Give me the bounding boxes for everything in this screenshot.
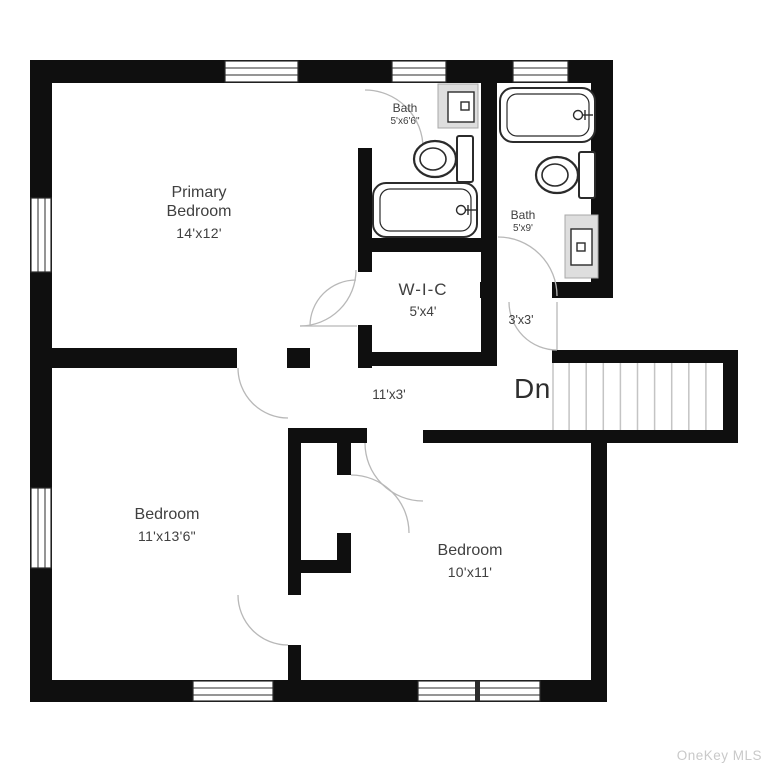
- wall-bedroom-divider-lower: [288, 645, 301, 680]
- door-arc-bedroom-right-entry: [365, 443, 423, 501]
- room-name: Bath: [511, 208, 536, 222]
- window-bedroom-right-bottom: [418, 681, 540, 701]
- room-dims: 11'x3': [372, 387, 405, 402]
- room-dims: 10'x11': [438, 564, 503, 581]
- bathtub-icon: [500, 88, 595, 142]
- room-dims: 5'x6'6": [390, 116, 419, 128]
- window-bedroom-left-bottom: [193, 681, 273, 701]
- door-arc-wic: [310, 280, 356, 326]
- room-name: Bedroom: [438, 541, 503, 560]
- room-label-wic: W-I-C 5'x4': [398, 280, 447, 321]
- room-name: W-I-C: [398, 280, 447, 300]
- stairs: [552, 363, 723, 430]
- room-dims: 3'x3': [509, 313, 534, 327]
- room-dims: 14'x12': [167, 225, 232, 242]
- room-label-bedroom-right: Bedroom 10'x11': [438, 541, 503, 581]
- room-label-primary-bedroom: Primary Bedroom 14'x12': [167, 183, 232, 242]
- room-label-hallway: 11'x3': [372, 387, 405, 403]
- tub-faucet-icon: [457, 206, 466, 215]
- window-primary-left: [31, 198, 51, 272]
- tub-faucet-icon: [574, 111, 583, 120]
- wall-bedroom-right-east: [591, 430, 607, 682]
- wall-primary-right: [358, 148, 372, 272]
- wall-stairs-bottom: [423, 430, 738, 443]
- room-dims: 5'x4': [398, 304, 447, 320]
- floor-plan: Primary Bedroom 14'x12' Bath 5'x6'6" Bat…: [0, 0, 767, 768]
- room-label-bath-ensuite: Bath 5'x6'6": [390, 101, 419, 128]
- door-arcs: [238, 90, 557, 645]
- door-arc-bedroom-left-entry: [238, 368, 288, 418]
- sink-vanity-icon: [438, 84, 478, 128]
- wall-primary-bottom-stub: [287, 348, 310, 368]
- window-mullion: [475, 681, 480, 701]
- wall-primary-bottom: [30, 348, 237, 368]
- room-name: Primary: [167, 183, 232, 202]
- floor-plan-drawing: [0, 0, 767, 768]
- stairs-down-label: Dn: [514, 373, 551, 405]
- watermark: OneKey MLS: [677, 748, 762, 763]
- bathtub-icon: [373, 183, 477, 237]
- window-primary-top: [225, 61, 298, 82]
- wall-bath-divider: [481, 83, 497, 365]
- door-arc-primary-bedroom: [300, 270, 356, 326]
- room-label-landing: 3'x3': [509, 313, 534, 328]
- wall-bath-ensuite-bottom: [358, 238, 482, 252]
- room-name: Bath: [390, 101, 419, 115]
- door-arc-closet: [351, 475, 409, 533]
- room-dims: 5'x9': [511, 223, 536, 235]
- wall-closet-bottom: [288, 560, 351, 573]
- wall-closet-stub-top: [337, 428, 351, 475]
- room-label-bath-hall: Bath 5'x9': [511, 208, 536, 235]
- room-name: Bedroom: [135, 505, 200, 524]
- toilet-icon: [536, 152, 595, 198]
- room-label-bedroom-left: Bedroom 11'x13'6": [135, 505, 200, 545]
- window-bedroom-left-west: [31, 488, 51, 568]
- wall-stairs-right: [723, 350, 738, 443]
- sink-vanity-icon: [565, 215, 598, 278]
- wall-wic-bottom: [358, 352, 497, 366]
- room-name: Bedroom: [167, 202, 232, 221]
- window-bath-hall-top: [513, 61, 568, 82]
- door-arc-bath-hall: [498, 237, 557, 296]
- wall-exterior-left: [30, 60, 52, 702]
- wall-stairs-top: [552, 350, 738, 363]
- wall-bath-hall-bottom: [552, 282, 613, 298]
- room-dims: 11'x13'6": [135, 528, 200, 545]
- door-arc-bedroom-left-second: [238, 595, 288, 645]
- window-bath-ensuite-top: [392, 61, 446, 82]
